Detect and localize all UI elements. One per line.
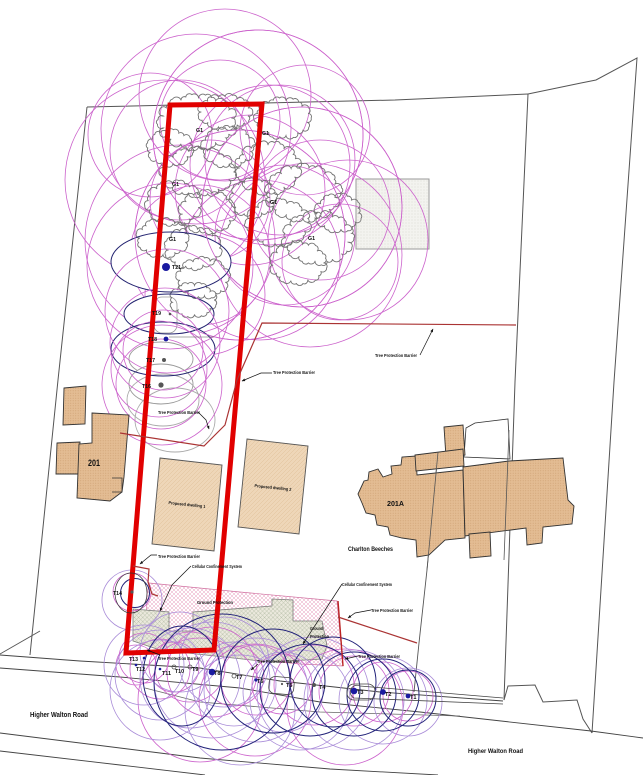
svg-text:T6: T6: [257, 679, 264, 685]
svg-text:T16: T16: [142, 384, 151, 390]
svg-text:T19: T19: [152, 311, 161, 317]
svg-text:Higher Walton Road: Higher Walton Road: [30, 712, 88, 719]
svg-text:T4: T4: [319, 685, 326, 691]
svg-text:Tree Protection Barrier: Tree Protection Barrier: [158, 554, 200, 559]
svg-text:T9: T9: [192, 667, 199, 673]
svg-text:Charlton Beeches: Charlton Beeches: [348, 546, 393, 553]
svg-text:G1: G1: [169, 237, 176, 243]
svg-text:201A: 201A: [387, 499, 405, 508]
svg-text:Tree Protection Barrier: Tree Protection Barrier: [273, 370, 315, 375]
svg-text:G1: G1: [262, 131, 269, 137]
svg-text:T12: T12: [136, 667, 145, 673]
svg-text:Protection: Protection: [310, 634, 329, 639]
svg-text:Ground: Ground: [310, 626, 323, 631]
svg-text:T17: T17: [146, 358, 155, 364]
svg-text:Tree Protection Barrier: Tree Protection Barrier: [358, 654, 400, 659]
svg-text:T5: T5: [286, 683, 293, 689]
svg-text:T1: T1: [410, 695, 417, 701]
svg-text:G1: G1: [308, 236, 315, 242]
svg-text:Higher Walton Road: Higher Walton Road: [468, 748, 523, 755]
svg-text:T10: T10: [175, 669, 184, 675]
svg-text:T13: T13: [129, 657, 138, 663]
svg-text:Ground Protection: Ground Protection: [197, 600, 233, 605]
svg-text:T7: T7: [236, 675, 243, 681]
svg-text:Tree Protection Barrier: Tree Protection Barrier: [257, 659, 299, 664]
svg-text:T14: T14: [113, 591, 122, 597]
svg-text:T8: T8: [214, 671, 221, 677]
svg-text:201: 201: [88, 458, 100, 468]
svg-text:T21: T21: [172, 265, 181, 271]
svg-text:Tree Protection Barrier: Tree Protection Barrier: [158, 656, 200, 661]
svg-text:Cellular Confinement System: Cellular Confinement System: [192, 564, 242, 569]
svg-text:Tree Protection Barrier: Tree Protection Barrier: [375, 353, 417, 358]
svg-text:T3: T3: [357, 690, 364, 696]
svg-text:Cellular Confinement System: Cellular Confinement System: [342, 582, 392, 587]
svg-text:T18: T18: [148, 337, 157, 343]
svg-text:G1: G1: [196, 128, 203, 134]
svg-text:T2: T2: [385, 692, 392, 698]
svg-text:G1: G1: [270, 200, 277, 206]
svg-text:T11: T11: [162, 671, 171, 677]
svg-text:G1: G1: [172, 182, 179, 188]
svg-text:Tree Protection Barrier: Tree Protection Barrier: [371, 608, 413, 613]
svg-text:Tree Protection Barrier: Tree Protection Barrier: [158, 410, 200, 415]
